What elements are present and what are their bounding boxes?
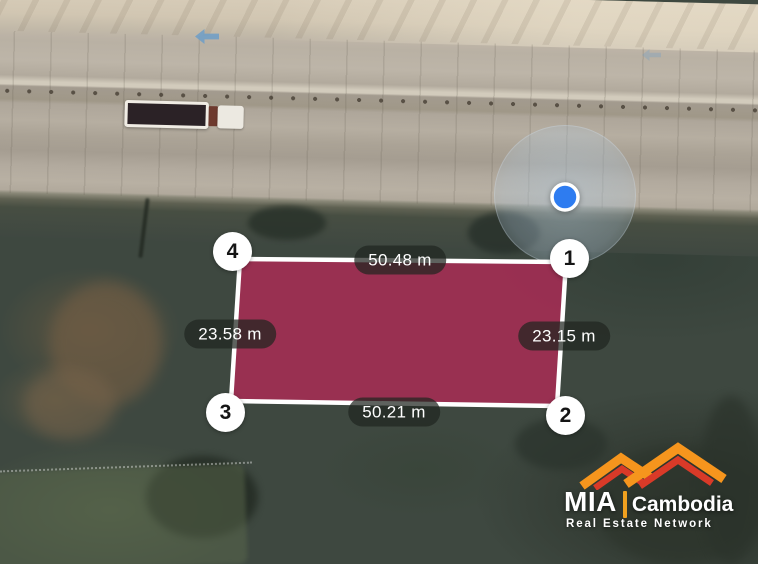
measurement-label-left: 23.58 m bbox=[184, 320, 276, 349]
measurement-label-bottom: 50.21 m bbox=[348, 398, 440, 427]
logo-tagline: Real Estate Network bbox=[566, 518, 713, 530]
corner-marker-2[interactable]: 2 bbox=[546, 396, 585, 435]
measurement-label-right: 23.15 m bbox=[518, 322, 610, 351]
logo-separator-bar bbox=[623, 491, 627, 518]
logo-brand: MIA bbox=[564, 486, 617, 518]
logo-region: Cambodia bbox=[632, 493, 734, 517]
corner-marker-3[interactable]: 3 bbox=[206, 393, 245, 432]
corner-marker-1[interactable]: 1 bbox=[550, 239, 589, 278]
roof-icon bbox=[576, 442, 728, 490]
measurement-label-top: 50.48 m bbox=[354, 246, 446, 275]
logo-text-row: MIA Cambodia bbox=[564, 486, 740, 518]
map-canvas[interactable]: 50.48 m 23.58 m 23.15 m 50.21 m 4 1 2 3 … bbox=[0, 0, 758, 564]
corner-marker-4[interactable]: 4 bbox=[213, 232, 252, 271]
